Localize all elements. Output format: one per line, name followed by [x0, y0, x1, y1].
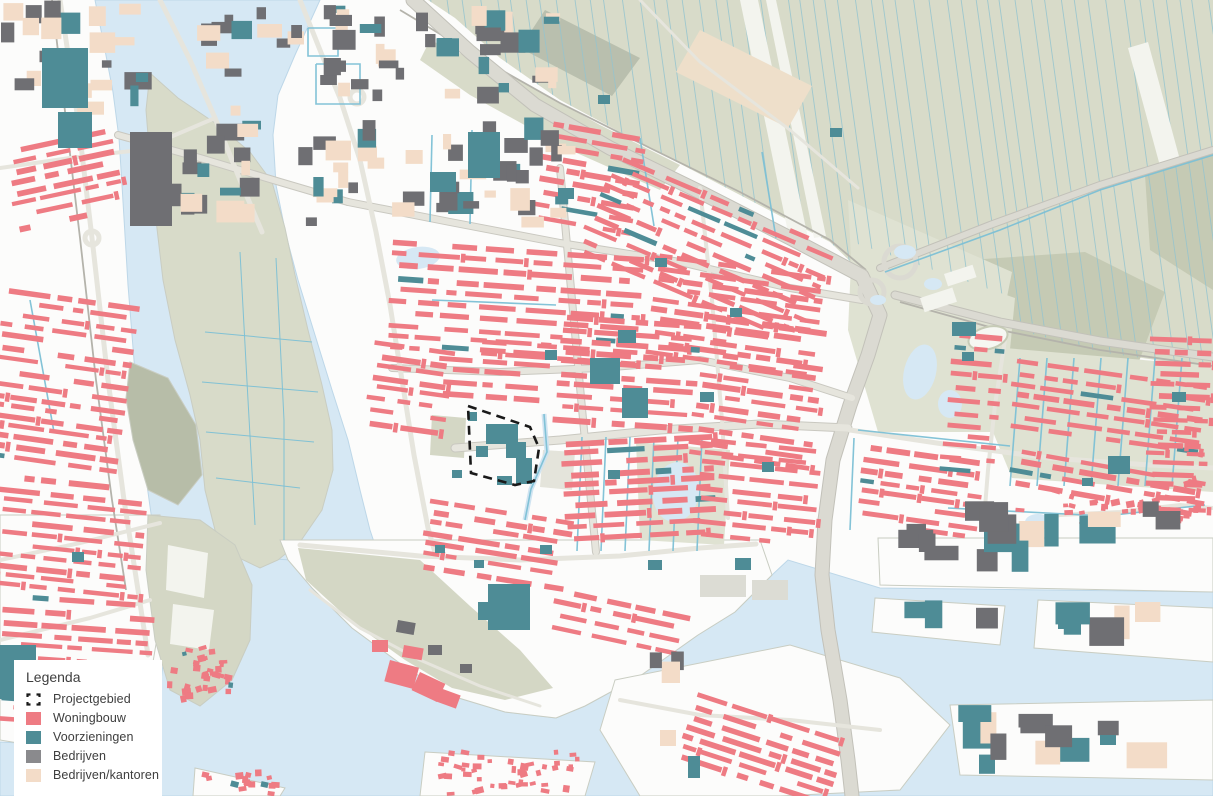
- building: [752, 580, 788, 600]
- map-figure: Legenda ProjectgebiedWoningbouwVoorzieni…: [0, 0, 1213, 796]
- building: [540, 545, 552, 554]
- building: [516, 458, 532, 484]
- legend-label: Bedrijven: [53, 749, 106, 763]
- building: [830, 128, 842, 137]
- building: [72, 552, 84, 562]
- building: [590, 358, 620, 384]
- color-swatch: [26, 750, 41, 763]
- legend-label: Woningbouw: [53, 711, 126, 725]
- building: [558, 188, 574, 199]
- building: [430, 172, 456, 192]
- building: [1108, 456, 1130, 474]
- building: [428, 645, 442, 655]
- building: [1172, 392, 1186, 402]
- building: [130, 132, 172, 226]
- building: [545, 350, 557, 360]
- building: [476, 446, 488, 457]
- building: [452, 470, 462, 478]
- legend-title: Legenda: [26, 669, 158, 685]
- color-swatch: [26, 712, 41, 725]
- building: [962, 352, 974, 361]
- building: [700, 575, 746, 597]
- building: [660, 730, 676, 746]
- building: [622, 388, 648, 418]
- building: [478, 602, 492, 620]
- legend-label: Bedrijven/kantoren: [53, 768, 159, 782]
- building: [655, 258, 667, 267]
- building: [460, 664, 472, 673]
- legend-label: Voorzieningen: [53, 730, 134, 744]
- color-swatch: [26, 731, 41, 744]
- legend: Legenda ProjectgebiedWoningbouwVoorzieni…: [14, 660, 162, 796]
- building: [42, 48, 88, 108]
- legend-item-4: Bedrijven/kantoren: [26, 768, 158, 782]
- building: [700, 392, 714, 402]
- pond: [894, 245, 916, 259]
- building: [762, 462, 774, 472]
- building: [648, 560, 662, 570]
- building: [435, 545, 445, 553]
- building: [372, 640, 388, 652]
- legend-item-0: Projectgebied: [26, 692, 158, 706]
- building: [735, 558, 751, 570]
- peninsula-field: [166, 545, 208, 598]
- building: [468, 132, 500, 178]
- legend-item-3: Bedrijven: [26, 749, 158, 763]
- color-swatch: [26, 769, 41, 782]
- project-area-swatch-icon: [26, 693, 41, 706]
- building: [1082, 478, 1093, 486]
- building: [608, 470, 620, 479]
- building: [1058, 618, 1078, 629]
- building: [58, 112, 92, 148]
- building: [598, 95, 610, 104]
- peninsula-field: [170, 604, 214, 650]
- building: [618, 330, 636, 343]
- building: [506, 442, 526, 458]
- building: [488, 584, 530, 630]
- building: [952, 322, 976, 336]
- legend-label: Projectgebied: [53, 692, 131, 706]
- legend-items: ProjectgebiedWoningbouwVoorzieningenBedr…: [26, 692, 158, 782]
- pond: [870, 295, 886, 305]
- building: [688, 756, 700, 778]
- map-canvas: [0, 0, 1213, 796]
- building: [474, 560, 484, 568]
- legend-item-1: Woningbouw: [26, 711, 158, 725]
- legend-item-2: Voorzieningen: [26, 730, 158, 744]
- pond: [924, 278, 942, 290]
- building: [486, 424, 518, 444]
- building: [730, 308, 742, 317]
- building: [1100, 735, 1116, 745]
